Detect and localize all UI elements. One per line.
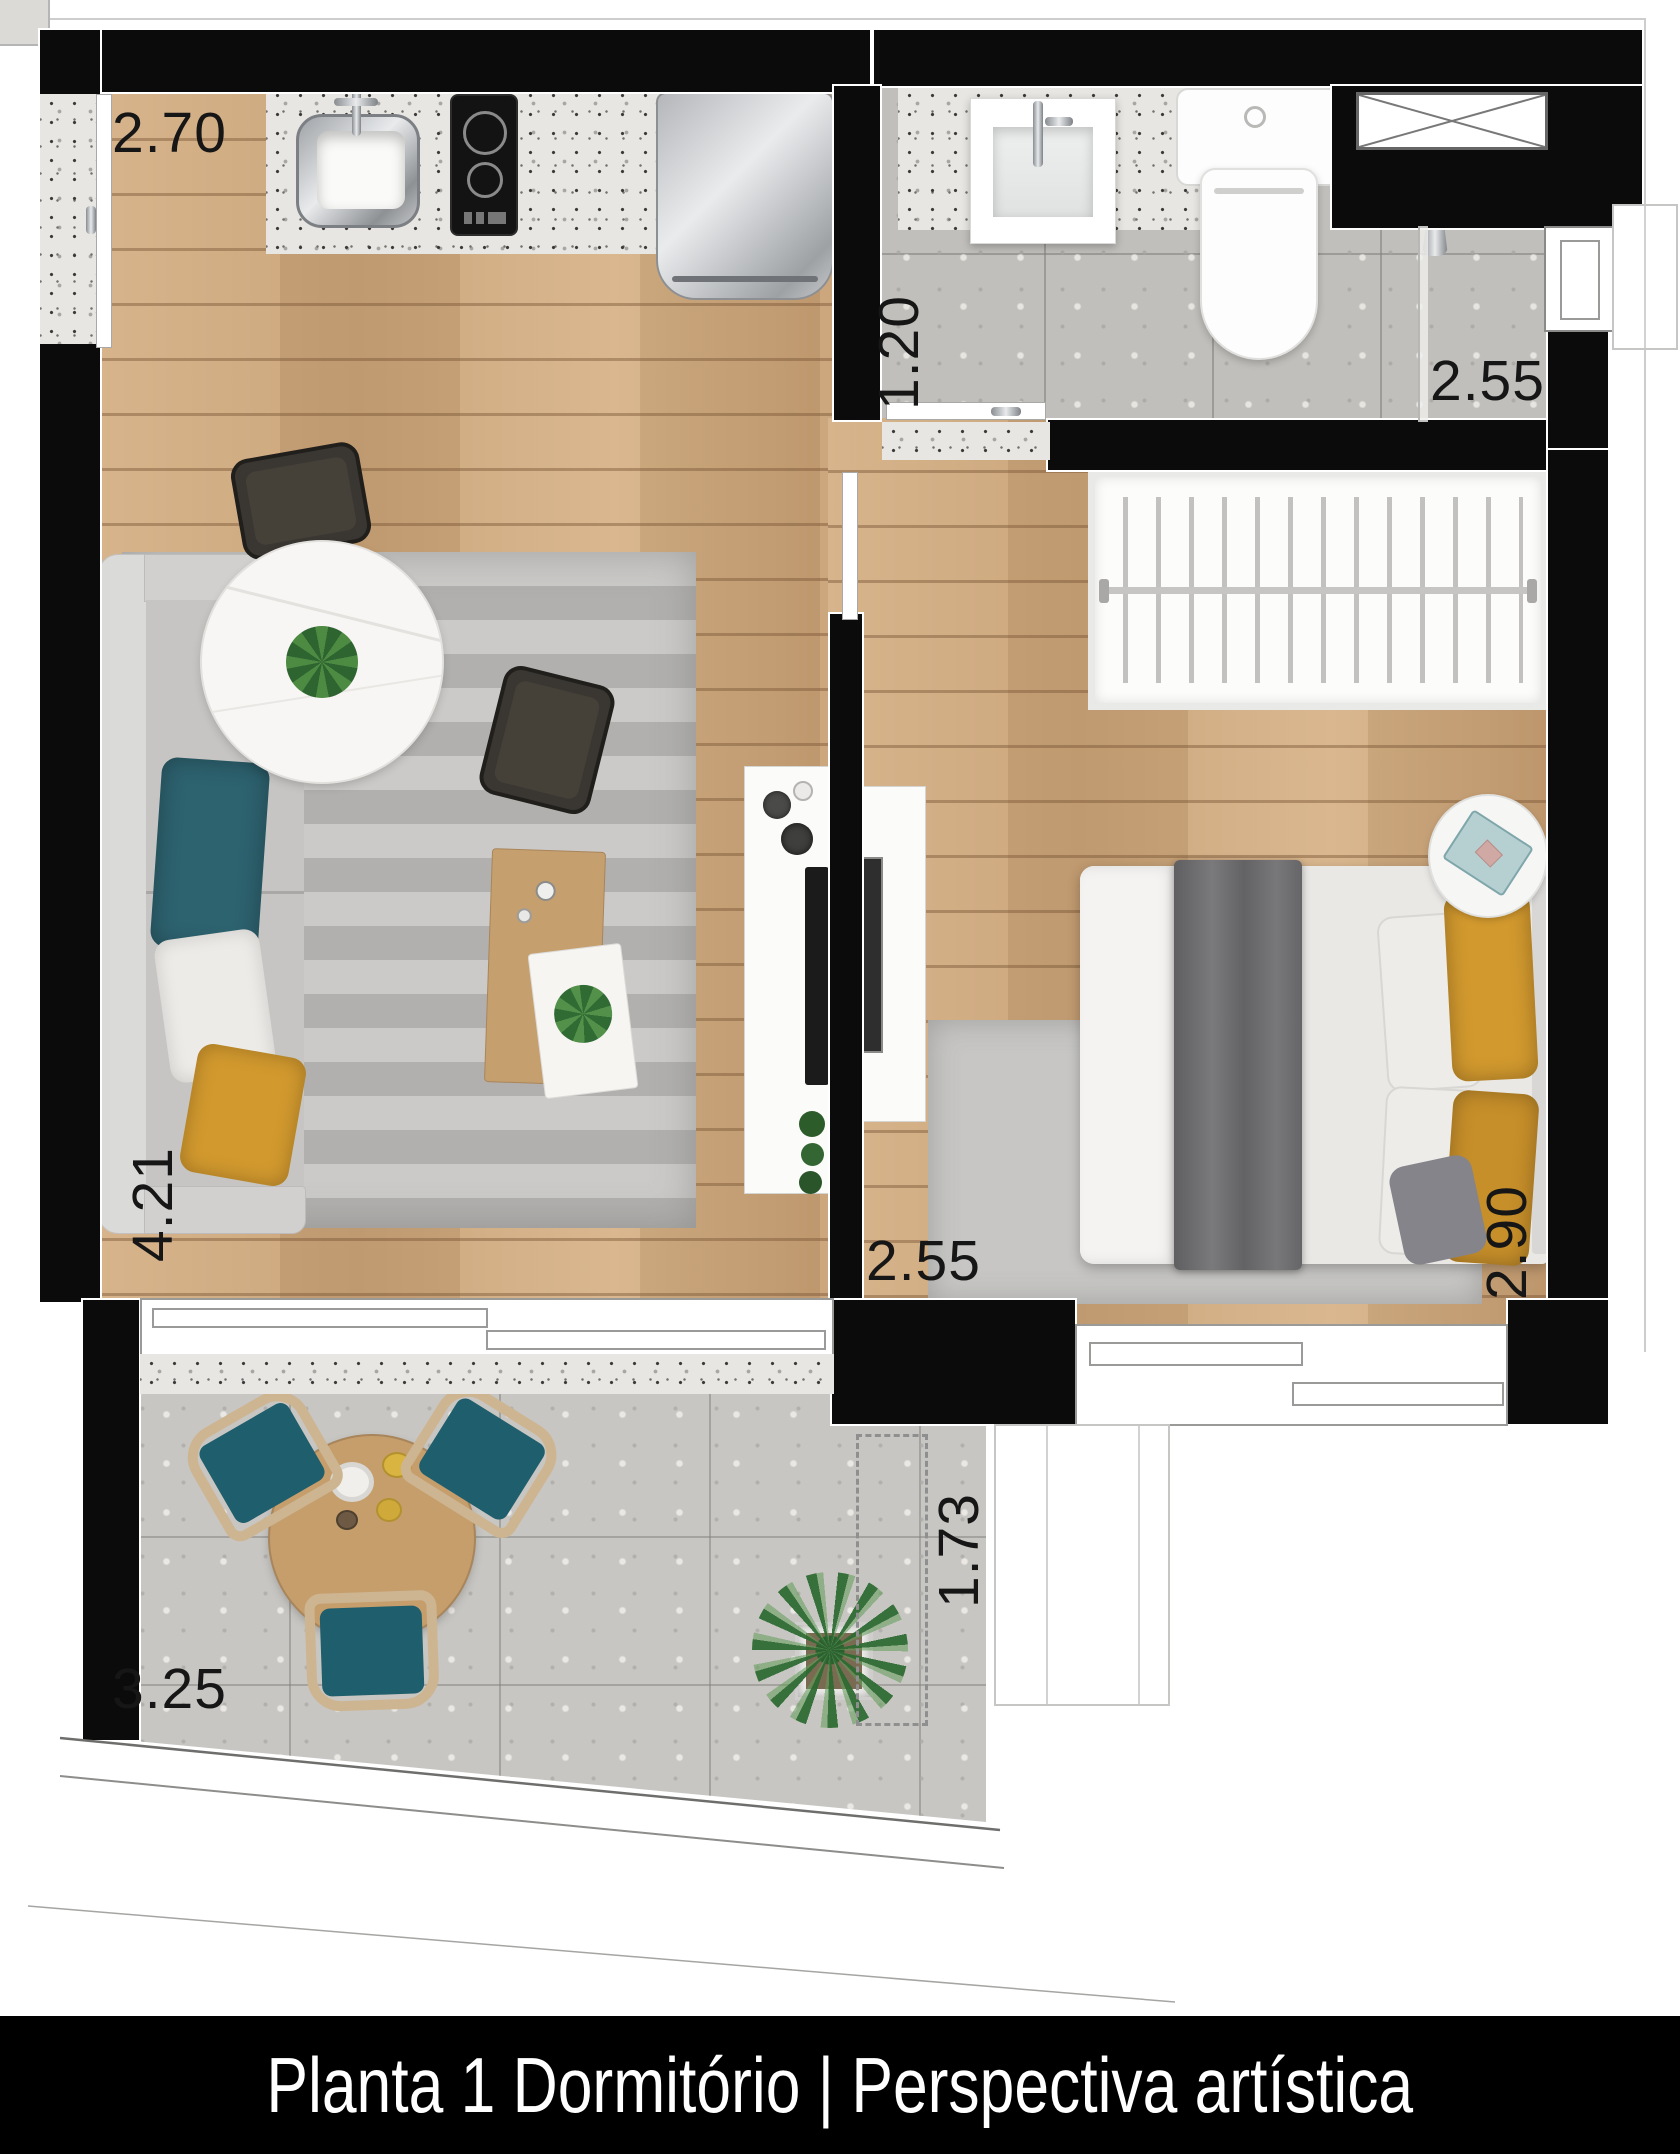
vase-icon — [793, 781, 813, 801]
bed-sheet-fold — [1080, 866, 1178, 1264]
shower-glass — [1418, 226, 1428, 422]
wall-top-left — [38, 28, 872, 94]
bedroom-media-panel — [856, 786, 926, 1122]
vase-icon — [781, 823, 813, 855]
dim-bathroom-length: 2.55 — [1430, 348, 1545, 414]
wall-bedroom-bottom-left — [830, 1298, 1077, 1426]
bathroom-window-exterior-sill — [1612, 204, 1678, 350]
decor-tray-icon — [1442, 809, 1534, 897]
bedroom-window — [1075, 1324, 1508, 1426]
kitchen-faucet-bar-icon — [334, 98, 378, 106]
balcony-chair-seat — [319, 1605, 424, 1697]
wall-left-main — [38, 342, 102, 1304]
decor-plant-icon — [801, 1143, 824, 1166]
dim-bedroom-width: 2.55 — [866, 1228, 981, 1294]
door-panel — [152, 1308, 488, 1328]
plan-title: Planta 1 Dormitório | Perspectiva artíst… — [267, 2040, 1414, 2131]
cup-icon — [336, 1510, 358, 1530]
balcony-parapet-outline — [0, 1690, 1260, 2030]
sill-line — [1138, 1426, 1140, 1704]
entry-door-handle-icon — [86, 206, 96, 234]
bedside-table — [1430, 796, 1546, 916]
toilet-flush-icon — [1244, 106, 1266, 128]
cooktop-controls — [464, 212, 506, 224]
bedroom-tv-icon — [861, 857, 883, 1053]
sofa-pillow-teal — [150, 756, 271, 953]
bedroom-door — [842, 472, 858, 620]
bath-faucet-handle-icon — [1045, 117, 1073, 126]
door-panel — [486, 1330, 826, 1350]
tray-dish-icon — [1475, 839, 1503, 867]
toilet — [1176, 88, 1340, 360]
tv-console — [744, 766, 834, 1194]
window-pane — [1089, 1342, 1303, 1366]
tv-icon — [805, 867, 829, 1085]
decor-plant-icon — [799, 1111, 825, 1137]
dim-bathroom-width: 1.20 — [866, 295, 932, 410]
dim-kitchen-width: 2.70 — [112, 100, 227, 166]
shaft-x-icon — [1359, 95, 1545, 147]
sill-line — [1046, 1426, 1048, 1704]
wall-bedroom-corner — [1506, 1298, 1610, 1426]
coffee-table-plant-icon — [551, 982, 616, 1047]
balcony-sliding-door — [140, 1298, 834, 1356]
bed-pillow-mustard — [1443, 890, 1539, 1082]
burner-icon — [467, 162, 503, 198]
cup-icon — [535, 881, 556, 902]
ac-condenser-outline — [856, 1434, 928, 1726]
dim-balcony-depth: 1.73 — [926, 1493, 992, 1608]
vase-icon — [763, 791, 791, 819]
burner-icon — [463, 111, 507, 155]
floor-plan-page: 2.70 1.20 2.55 4.21 2.55 2.90 1.73 3.25 … — [0, 0, 1680, 2154]
sofa-back — [98, 554, 148, 1234]
bath-sink-basin — [993, 127, 1093, 217]
balcony-door-sill — [140, 1354, 834, 1394]
wall-bedroom-top — [1046, 418, 1548, 472]
wall-top-right — [872, 28, 1644, 88]
closet-rod-end — [1099, 579, 1109, 603]
wall-left-top — [38, 28, 102, 96]
cup-icon — [517, 908, 533, 924]
bath-faucet-icon — [1033, 101, 1043, 167]
bedroom-window-exterior-sill — [994, 1424, 1170, 1706]
sink-basin — [317, 131, 405, 209]
bath-sink — [970, 98, 1116, 244]
wall-living-bedroom-divider — [828, 612, 864, 1300]
toilet-bowl — [1200, 168, 1318, 360]
closet-rod-icon — [1103, 587, 1533, 594]
bathroom-door-sill — [882, 422, 1050, 460]
wall-bath-right-lower — [1546, 330, 1610, 450]
closet-rod-end — [1527, 579, 1537, 603]
fridge — [656, 92, 834, 300]
duct-shaft — [1356, 92, 1548, 150]
sill-line — [1644, 206, 1646, 348]
window-pane — [1292, 1382, 1504, 1406]
plate-icon — [376, 1498, 402, 1522]
dining-table — [202, 542, 442, 782]
kitchen-faucet-icon — [352, 88, 361, 136]
dim-living-length: 4.21 — [120, 1147, 186, 1262]
decor-plant-icon — [799, 1171, 822, 1194]
toilet-seat-line — [1214, 188, 1304, 194]
dim-balcony-width: 3.25 — [112, 1656, 227, 1722]
entry-door — [96, 94, 112, 348]
dim-bedroom-length: 2.90 — [1474, 1185, 1540, 1300]
wall-right — [1546, 448, 1610, 1322]
cooktop — [450, 94, 518, 236]
sofa-pillow-mustard — [178, 1041, 309, 1188]
bathroom-window — [1544, 226, 1614, 332]
outline-top — [30, 18, 1646, 20]
bathroom-door-handle-icon — [991, 407, 1021, 416]
window-pane — [1560, 240, 1600, 320]
bed-throw-blanket — [1174, 860, 1302, 1270]
coffee-table-white — [527, 943, 638, 1099]
closet — [1088, 470, 1548, 710]
title-bar: Planta 1 Dormitório | Perspectiva artíst… — [0, 2016, 1680, 2154]
centerpiece-plant-icon — [286, 626, 358, 698]
fridge-handle-icon — [672, 276, 818, 282]
